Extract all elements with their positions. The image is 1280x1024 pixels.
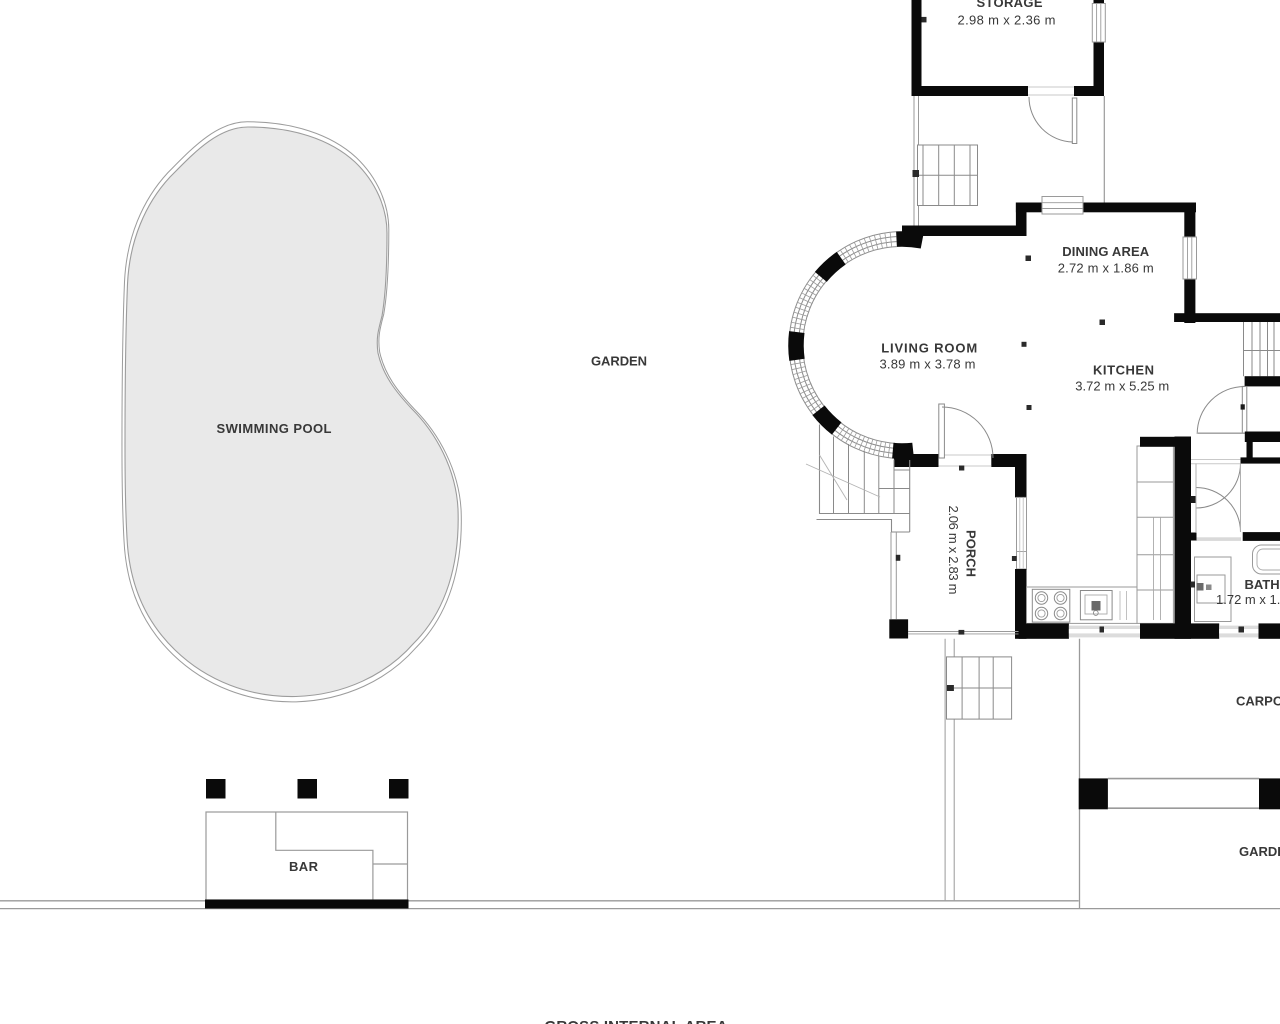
svg-text:3.89 m x 3.78 m: 3.89 m x 3.78 m: [880, 357, 976, 372]
svg-text:GROSS INTERNAL AREA: GROSS INTERNAL AREA: [545, 1018, 728, 1024]
svg-text:GARDEN: GARDEN: [1239, 844, 1280, 859]
svg-text:SWIMMING POOL: SWIMMING POOL: [217, 421, 332, 436]
svg-text:BAR: BAR: [289, 859, 319, 874]
svg-text:CARPORT: CARPORT: [1236, 694, 1280, 709]
svg-text:PORCH: PORCH: [964, 530, 979, 577]
svg-text:1.72 m x 1.67 m: 1.72 m x 1.67 m: [1216, 592, 1280, 607]
svg-text:GARDEN: GARDEN: [591, 354, 647, 369]
svg-text:LIVING ROOM: LIVING ROOM: [881, 341, 977, 356]
svg-text:DINING AREA: DINING AREA: [1062, 244, 1150, 259]
svg-text:2.98 m x 2.36 m: 2.98 m x 2.36 m: [958, 13, 1056, 28]
svg-text:2.72 m x 1.86 m: 2.72 m x 1.86 m: [1058, 261, 1154, 276]
svg-text:BATHROOM: BATHROOM: [1245, 577, 1280, 592]
svg-text:3.72 m x 5.25 m: 3.72 m x 5.25 m: [1075, 378, 1169, 393]
svg-text:KITCHEN: KITCHEN: [1093, 362, 1154, 377]
svg-text:2.06 m x 2.83 m: 2.06 m x 2.83 m: [946, 506, 961, 595]
svg-text:STORAGE: STORAGE: [977, 0, 1043, 10]
